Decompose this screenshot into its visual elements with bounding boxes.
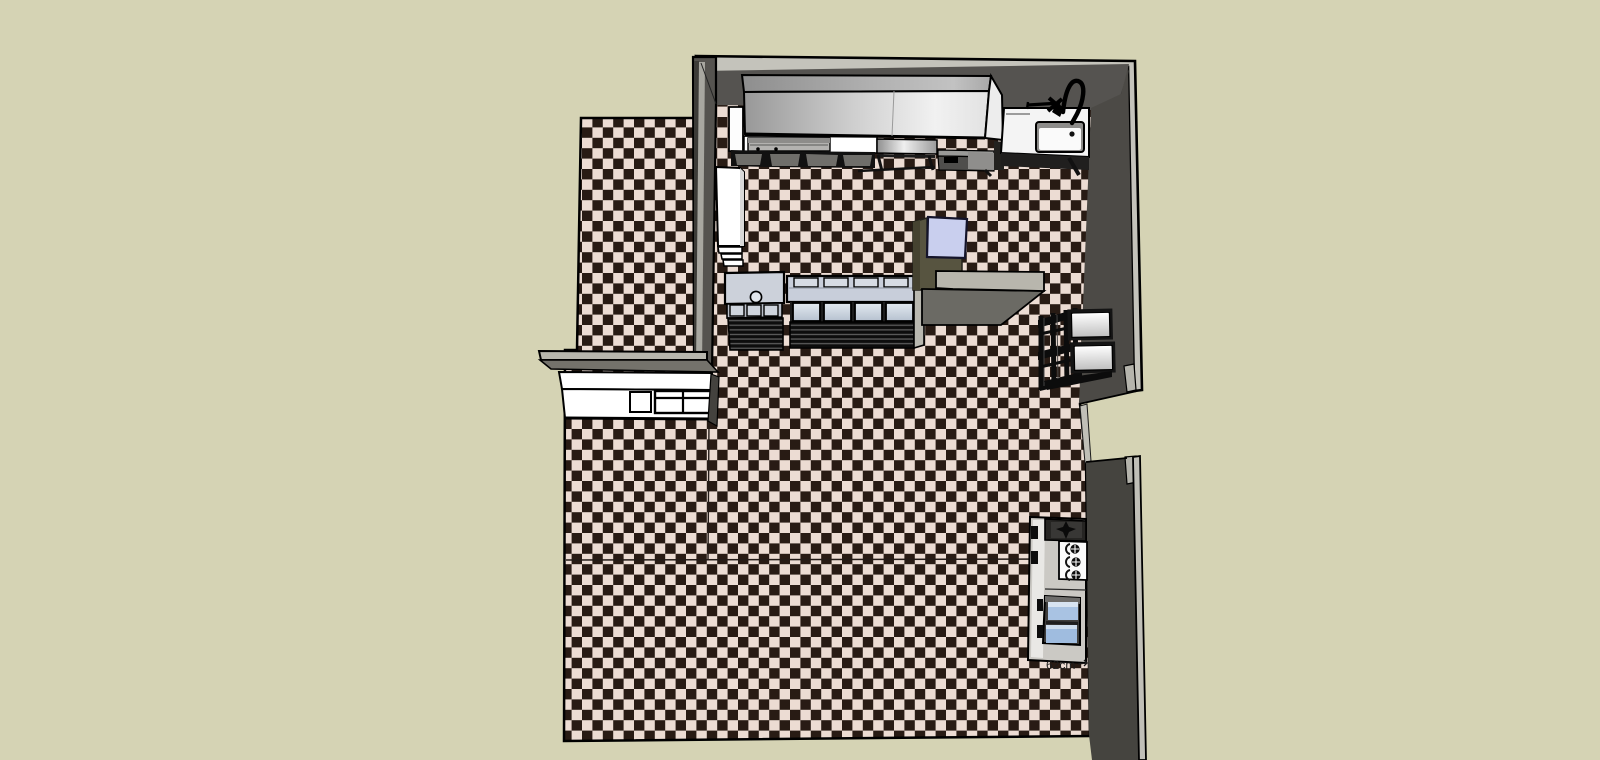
svg-text:62cm: 62cm — [1046, 658, 1075, 672]
